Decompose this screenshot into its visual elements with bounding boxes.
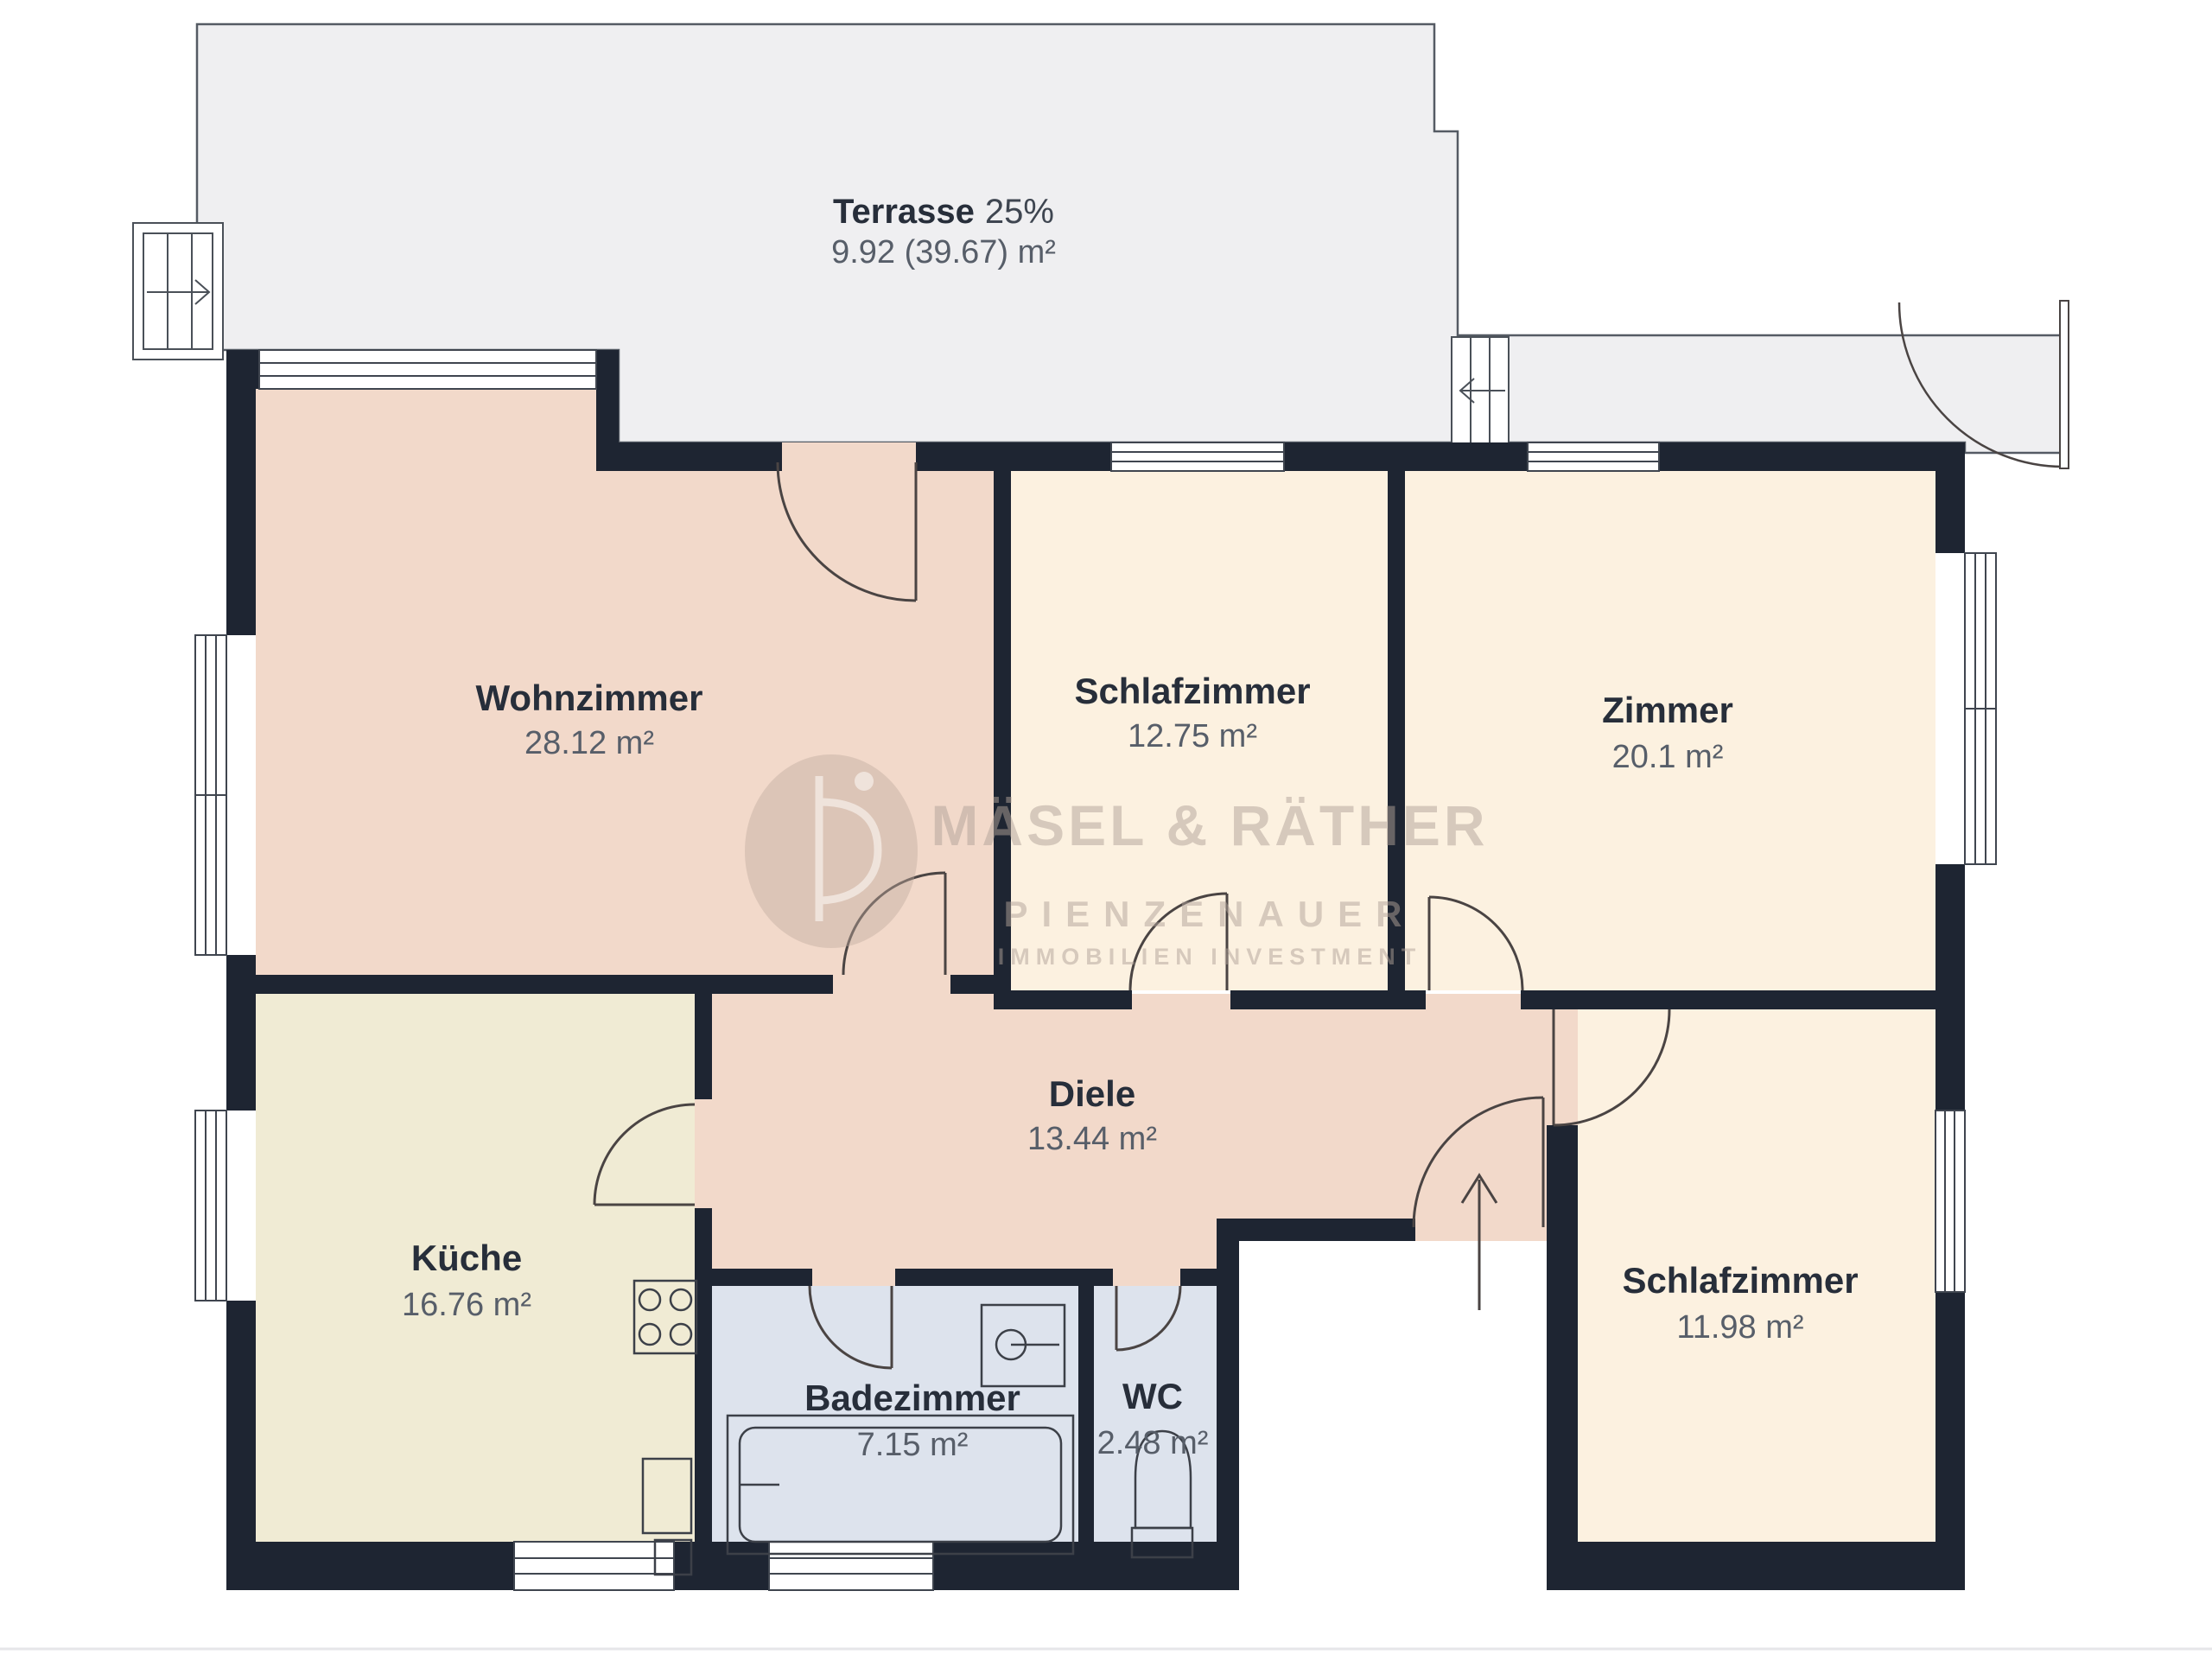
room-area-badezimmer: 7.15 m² bbox=[857, 1427, 969, 1463]
room-label-schlafzimmer2: Schlafzimmer bbox=[1622, 1260, 1858, 1301]
terrace-label: Terrasse25% bbox=[833, 193, 1054, 231]
room-area-schlafzimmer2: 11.98 m² bbox=[1676, 1309, 1803, 1346]
window-schlafzimmer2-right-icon bbox=[1935, 1111, 1965, 1292]
watermark-logo-circle bbox=[745, 754, 918, 948]
room-label-badezimmer: Badezimmer bbox=[804, 1378, 1020, 1418]
window-wohnzimmer-left-icon bbox=[195, 635, 226, 955]
room-label-zimmer: Zimmer bbox=[1602, 690, 1733, 730]
room-area-zimmer: 20.1 m² bbox=[1612, 739, 1724, 775]
room-area-wohnzimmer: 28.12 m² bbox=[524, 725, 654, 761]
room-wc-floor bbox=[1094, 1286, 1217, 1547]
window-badezimmer-bottom-icon bbox=[769, 1542, 933, 1590]
room-area-schlafzimmer1: 12.75 m² bbox=[1128, 718, 1257, 754]
watermark-line1: MÄSEL & RÄTHER bbox=[931, 793, 1488, 857]
window-zimmer-right-icon bbox=[1965, 553, 1996, 864]
terrace-area: 9.92 (39.67) m² bbox=[831, 234, 1056, 270]
room-label-wohnzimmer: Wohnzimmer bbox=[476, 678, 703, 718]
watermark-line2: PIENZENAUER bbox=[1003, 894, 1415, 934]
window-schlafzimmer1-top-icon bbox=[1111, 442, 1284, 471]
stairs-left-icon bbox=[133, 223, 223, 360]
stairs-right-icon bbox=[1452, 337, 1509, 448]
window-kueche-left-icon bbox=[195, 1111, 226, 1301]
entrance-arrow-icon bbox=[1462, 1175, 1497, 1310]
terrace-door-floor bbox=[782, 442, 916, 477]
room-area-wc: 2.48 m² bbox=[1097, 1425, 1209, 1461]
room-zimmer-floor bbox=[1405, 471, 1935, 990]
room-label-wc: WC bbox=[1122, 1376, 1183, 1416]
room-label-kueche: Küche bbox=[411, 1238, 522, 1278]
floor-plan-page: MÄSEL & RÄTHER PIENZENAUER IMMOBILIEN IN… bbox=[0, 0, 2212, 1661]
floor-plan-drawing: MÄSEL & RÄTHER PIENZENAUER IMMOBILIEN IN… bbox=[0, 0, 2212, 1661]
window-zimmer-top-icon bbox=[1528, 442, 1659, 471]
watermark-line3: IMMOBILIEN INVESTMENT bbox=[998, 944, 1422, 970]
room-area-diele: 13.44 m² bbox=[1027, 1121, 1157, 1157]
room-label-schlafzimmer1: Schlafzimmer bbox=[1074, 671, 1310, 711]
window-kueche-bottom-icon bbox=[514, 1542, 674, 1590]
room-area-kueche: 16.76 m² bbox=[402, 1287, 531, 1323]
room-label-diele: Diele bbox=[1049, 1073, 1135, 1114]
window-wohnzimmer-top-icon bbox=[259, 350, 596, 389]
